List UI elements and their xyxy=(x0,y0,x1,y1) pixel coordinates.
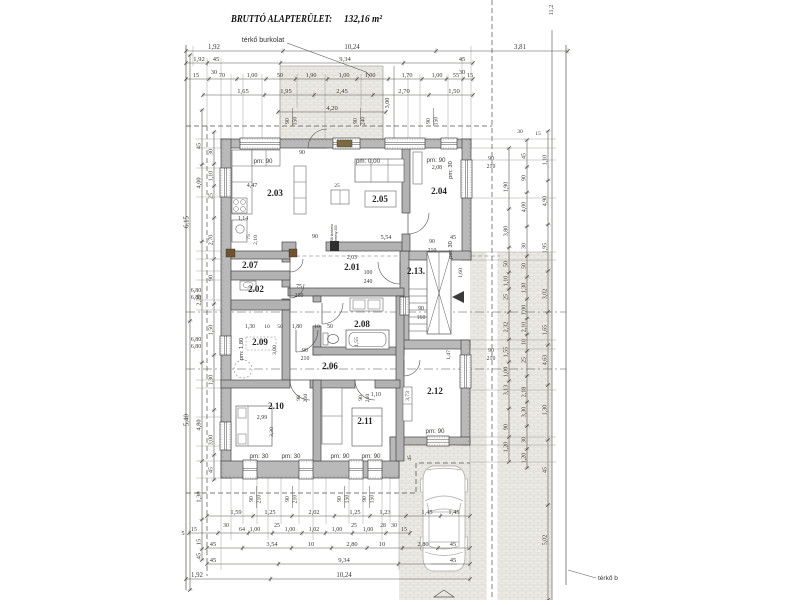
svg-text:1,65: 1,65 xyxy=(237,88,249,95)
svg-text:1,00: 1,00 xyxy=(250,527,261,533)
svg-text:1,55: 1,55 xyxy=(503,347,509,358)
svg-text:1,25: 1,25 xyxy=(349,509,360,516)
svg-text:15: 15 xyxy=(401,527,407,533)
svg-text:2.05: 2.05 xyxy=(372,194,388,204)
svg-text:1,55: 1,55 xyxy=(354,337,360,347)
svg-text:1,92: 1,92 xyxy=(193,56,205,63)
svg-text:90: 90 xyxy=(312,234,318,240)
svg-text:70: 70 xyxy=(219,72,225,79)
svg-text:1,95: 1,95 xyxy=(542,243,548,254)
svg-text:10,24: 10,24 xyxy=(344,44,360,51)
svg-text:pm: 90: pm: 90 xyxy=(426,428,445,435)
svg-text:3,30: 3,30 xyxy=(521,407,527,418)
svg-text:2,18: 2,18 xyxy=(521,387,527,398)
svg-text:4,47: 4,47 xyxy=(247,183,258,189)
svg-text:11,2: 11,2 xyxy=(548,5,555,16)
svg-text:2,99: 2,99 xyxy=(257,415,268,421)
svg-text:50: 50 xyxy=(503,261,509,267)
svg-text:45: 45 xyxy=(521,153,527,159)
svg-text:90: 90 xyxy=(429,239,435,245)
svg-text:240: 240 xyxy=(364,279,373,285)
svg-text:3,30: 3,30 xyxy=(269,427,275,437)
svg-text:90: 90 xyxy=(337,496,343,502)
svg-text:3,80: 3,80 xyxy=(503,226,509,237)
svg-text:50: 50 xyxy=(327,324,333,330)
svg-text:2.13.: 2.13. xyxy=(407,266,425,276)
svg-text:1,60: 1,60 xyxy=(458,268,464,278)
svg-text:45: 45 xyxy=(213,56,220,63)
svg-text:90: 90 xyxy=(249,496,255,502)
svg-text:2.08: 2.08 xyxy=(354,319,370,329)
svg-text:25: 25 xyxy=(334,183,340,189)
svg-text:1,45: 1,45 xyxy=(448,509,459,516)
svg-text:75: 75 xyxy=(246,234,252,240)
svg-text:térkő burkolat: térkő burkolat xyxy=(242,37,284,44)
svg-text:10: 10 xyxy=(308,541,314,548)
svg-text:2,10: 2,10 xyxy=(253,235,259,245)
svg-text:5: 5 xyxy=(181,530,184,537)
svg-text:1,14: 1,14 xyxy=(238,216,249,222)
svg-text:1,10: 1,10 xyxy=(371,392,381,398)
svg-text:210: 210 xyxy=(428,248,437,254)
svg-text:210: 210 xyxy=(487,164,496,170)
svg-text:45: 45 xyxy=(542,467,548,473)
svg-text:2,80: 2,80 xyxy=(346,541,357,548)
svg-text:25: 25 xyxy=(521,357,527,363)
svg-text:150: 150 xyxy=(370,495,376,504)
svg-text:2.03: 2.03 xyxy=(267,188,283,198)
svg-text:1,45: 1,45 xyxy=(421,509,432,516)
svg-text:25: 25 xyxy=(208,193,214,199)
svg-text:1,59: 1,59 xyxy=(230,509,241,516)
svg-text:3,73: 3,73 xyxy=(405,391,411,401)
svg-text:210: 210 xyxy=(257,495,263,504)
svg-text:4,20: 4,20 xyxy=(326,105,338,112)
svg-text:45: 45 xyxy=(195,143,202,149)
svg-text:1,50: 1,50 xyxy=(208,325,214,336)
svg-text:210: 210 xyxy=(301,356,310,362)
svg-text:1,00: 1,00 xyxy=(339,72,350,79)
svg-text:30: 30 xyxy=(517,129,523,135)
svg-text:75: 75 xyxy=(296,284,302,290)
svg-text:1,00: 1,00 xyxy=(247,72,258,79)
svg-text:2,32: 2,32 xyxy=(503,322,509,333)
svg-text:1,90: 1,90 xyxy=(306,72,317,79)
svg-text:45: 45 xyxy=(210,541,216,548)
svg-text:pm: 1,80: pm: 1,80 xyxy=(239,338,245,361)
svg-text:10: 10 xyxy=(379,541,385,548)
svg-text:240: 240 xyxy=(361,117,367,126)
svg-text:90: 90 xyxy=(426,118,432,124)
svg-text:90: 90 xyxy=(302,348,308,354)
svg-text:2.11: 2.11 xyxy=(357,416,373,426)
svg-text:50: 50 xyxy=(277,324,283,330)
svg-text:1,00: 1,00 xyxy=(503,367,509,378)
svg-text:90: 90 xyxy=(299,150,305,156)
svg-text:25: 25 xyxy=(503,294,509,300)
svg-text:1,02: 1,02 xyxy=(309,527,320,533)
svg-text:2,10: 2,10 xyxy=(521,322,527,333)
svg-text:2.04: 2.04 xyxy=(431,186,447,196)
svg-text:2,70: 2,70 xyxy=(398,88,410,95)
svg-text:pm: 90: pm: 90 xyxy=(331,453,350,460)
svg-text:210: 210 xyxy=(365,394,371,403)
svg-text:9,34: 9,34 xyxy=(338,557,350,564)
svg-text:2.07: 2.07 xyxy=(242,260,258,270)
svg-text:45: 45 xyxy=(195,553,202,559)
svg-text:3,81: 3,81 xyxy=(514,44,526,51)
svg-text:15: 15 xyxy=(193,72,199,79)
svg-text:1,00: 1,00 xyxy=(521,305,527,316)
svg-text:2,08: 2,08 xyxy=(432,165,442,171)
svg-text:BRUTTÓ ALAPTERÜLET:: BRUTTÓ ALAPTERÜLET: xyxy=(230,12,332,25)
svg-text:1,47: 1,47 xyxy=(446,350,452,360)
svg-text:1,30: 1,30 xyxy=(195,491,202,502)
svg-text:1,10: 1,10 xyxy=(208,171,214,182)
svg-text:90: 90 xyxy=(285,118,291,124)
svg-text:1,00: 1,00 xyxy=(285,527,296,533)
svg-text:4,00: 4,00 xyxy=(521,202,527,213)
svg-text:pm: 90: pm: 90 xyxy=(427,157,446,164)
svg-text:10: 10 xyxy=(264,324,270,330)
svg-text:1,20: 1,20 xyxy=(503,442,509,453)
svg-text:1,30: 1,30 xyxy=(542,405,548,416)
svg-text:25: 25 xyxy=(274,523,280,529)
svg-text:10,24: 10,24 xyxy=(336,572,352,579)
svg-text:2.02: 2.02 xyxy=(248,284,264,294)
svg-text:2.09: 2.09 xyxy=(252,337,268,347)
svg-text:2.10: 2.10 xyxy=(268,401,284,411)
svg-text:1,70: 1,70 xyxy=(402,72,413,79)
svg-text:150: 150 xyxy=(293,117,299,126)
svg-text:90: 90 xyxy=(353,118,359,124)
svg-text:1,30: 1,30 xyxy=(521,283,527,294)
svg-text:2,80: 2,80 xyxy=(417,541,428,548)
svg-text:90: 90 xyxy=(503,424,509,430)
svg-text:6,80: 6,80 xyxy=(191,344,202,350)
svg-text:64: 64 xyxy=(239,527,245,533)
svg-text:5,40: 5,40 xyxy=(183,413,190,425)
svg-text:1,30: 1,30 xyxy=(245,324,255,330)
svg-text:210: 210 xyxy=(487,356,496,362)
svg-text:1,00: 1,00 xyxy=(332,527,343,533)
svg-text:30: 30 xyxy=(521,437,527,443)
svg-text:6,15: 6,15 xyxy=(183,215,190,227)
svg-text:50: 50 xyxy=(521,263,527,269)
svg-text:30: 30 xyxy=(391,523,397,529)
svg-text:3,00: 3,00 xyxy=(384,98,391,109)
svg-text:6,80: 6,80 xyxy=(191,337,202,343)
svg-text:210: 210 xyxy=(293,495,299,504)
svg-text:4,90: 4,90 xyxy=(542,196,548,207)
svg-text:3,00: 3,00 xyxy=(208,435,214,446)
svg-text:45: 45 xyxy=(210,557,217,564)
svg-text:pm: 30: pm: 30 xyxy=(448,241,454,259)
svg-text:45: 45 xyxy=(208,467,214,473)
svg-text:45: 45 xyxy=(450,557,457,564)
svg-text:210: 210 xyxy=(295,293,304,299)
svg-text:100: 100 xyxy=(364,270,373,276)
svg-text:2.01: 2.01 xyxy=(344,262,360,272)
svg-text:2.06: 2.06 xyxy=(322,361,338,371)
svg-text:150: 150 xyxy=(434,117,440,126)
svg-text:kémény 200: kémény 200 xyxy=(334,225,338,243)
svg-text:90: 90 xyxy=(285,496,291,502)
svg-text:210: 210 xyxy=(303,394,309,403)
svg-text:45: 45 xyxy=(407,455,413,461)
svg-text:1,80: 1,80 xyxy=(292,324,302,330)
svg-text:90: 90 xyxy=(358,395,364,401)
svg-text:pm: 30: pm: 30 xyxy=(250,453,269,460)
svg-text:15: 15 xyxy=(191,527,197,533)
svg-text:2,45: 2,45 xyxy=(336,88,348,95)
svg-text:térkő b: térkő b xyxy=(598,575,618,582)
svg-text:132,16 m²: 132,16 m² xyxy=(344,14,383,25)
svg-text:160: 160 xyxy=(417,315,426,321)
svg-text:30: 30 xyxy=(223,523,229,529)
svg-text:1,00: 1,00 xyxy=(365,72,376,79)
svg-text:45: 45 xyxy=(459,56,466,63)
svg-text:pm: 90: pm: 90 xyxy=(254,158,273,165)
svg-text:30: 30 xyxy=(521,243,527,249)
svg-text:28: 28 xyxy=(380,523,386,529)
svg-text:3,54: 3,54 xyxy=(266,541,278,548)
svg-text:1,65: 1,65 xyxy=(542,325,548,336)
svg-text:6,80: 6,80 xyxy=(191,288,202,294)
svg-text:pm: 0,00: pm: 0,00 xyxy=(356,158,381,165)
svg-text:30: 30 xyxy=(211,69,217,76)
svg-text:30: 30 xyxy=(208,149,214,155)
svg-text:4,63: 4,63 xyxy=(542,355,548,366)
svg-text:15: 15 xyxy=(195,539,202,545)
svg-text:1,00: 1,00 xyxy=(363,527,374,533)
svg-text:1,25: 1,25 xyxy=(264,509,275,516)
svg-text:5,02: 5,02 xyxy=(542,535,548,546)
svg-text:45: 45 xyxy=(450,541,456,548)
svg-text:1,92: 1,92 xyxy=(191,572,203,579)
svg-text:1,95: 1,95 xyxy=(280,88,292,95)
svg-text:90: 90 xyxy=(521,175,527,181)
svg-text:9,34: 9,34 xyxy=(339,56,351,63)
svg-text:2.12: 2.12 xyxy=(427,386,443,396)
svg-text:4,80: 4,80 xyxy=(195,419,202,430)
svg-text:4,00: 4,00 xyxy=(195,177,202,188)
svg-text:1,20: 1,20 xyxy=(521,453,527,464)
svg-text:3,02: 3,02 xyxy=(542,289,548,300)
svg-text:1,23: 1,23 xyxy=(379,509,390,516)
svg-text:1,90: 1,90 xyxy=(503,182,509,193)
svg-text:2,03: 2,03 xyxy=(347,255,357,261)
svg-text:25: 25 xyxy=(351,523,357,529)
svg-text:90: 90 xyxy=(418,306,424,312)
svg-text:150: 150 xyxy=(345,495,351,504)
svg-text:2,02: 2,02 xyxy=(308,509,319,516)
svg-text:1,92: 1,92 xyxy=(208,44,220,51)
svg-text:90: 90 xyxy=(488,156,494,162)
svg-text:pm: 90: pm: 90 xyxy=(362,453,381,460)
svg-text:pm: 30: pm: 30 xyxy=(448,161,454,179)
svg-text:3,00: 3,00 xyxy=(272,345,278,355)
svg-text:pm: 30: pm: 30 xyxy=(282,453,301,460)
svg-text:2,70: 2,70 xyxy=(208,235,214,246)
svg-text:90: 90 xyxy=(296,395,302,401)
svg-text:15: 15 xyxy=(535,131,541,137)
svg-text:1,00: 1,00 xyxy=(432,72,443,79)
svg-text:50: 50 xyxy=(277,72,283,79)
svg-text:10: 10 xyxy=(314,324,320,330)
svg-text:1,10: 1,10 xyxy=(503,276,509,287)
svg-text:45: 45 xyxy=(450,235,456,241)
svg-text:15: 15 xyxy=(467,72,473,79)
svg-text:5,54: 5,54 xyxy=(381,234,392,241)
svg-text:1,50: 1,50 xyxy=(448,88,460,95)
